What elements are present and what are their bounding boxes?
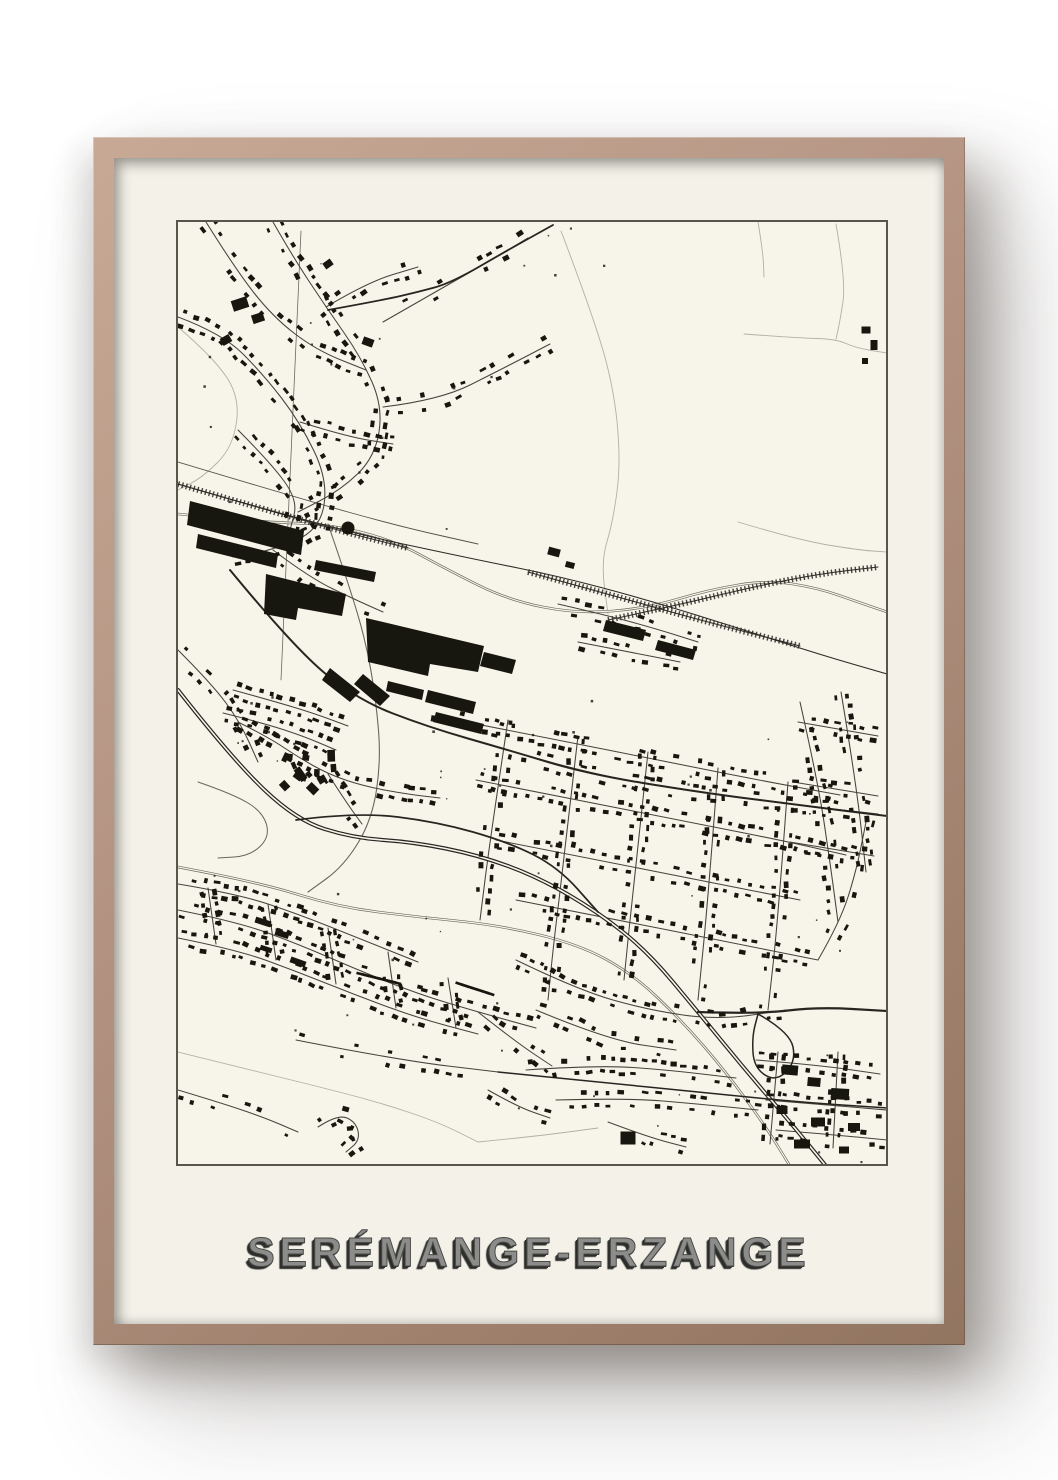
poster-title: SERÉMANGE-ERZANGE <box>247 1232 810 1273</box>
poster-photo: SERÉMANGE-ERZANGE <box>0 0 1058 1480</box>
map-image <box>178 222 886 1164</box>
picture-frame: SERÉMANGE-ERZANGE <box>93 137 965 1345</box>
title-row: SERÉMANGE-ERZANGE <box>114 1232 944 1273</box>
map-panel <box>176 220 888 1166</box>
mat-board: SERÉMANGE-ERZANGE <box>114 158 944 1324</box>
